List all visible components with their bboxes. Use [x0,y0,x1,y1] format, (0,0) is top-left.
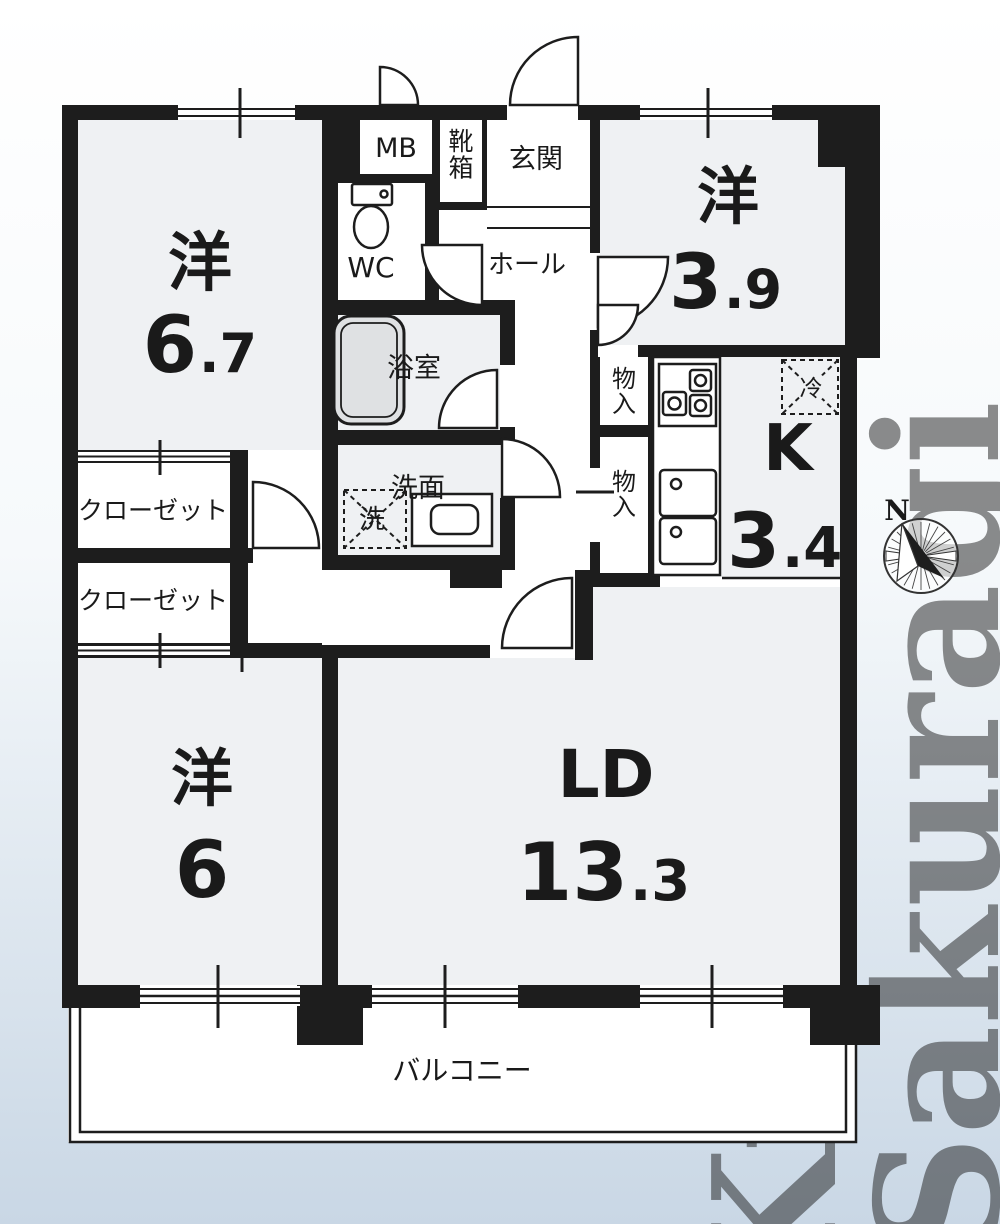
wall-pillar [810,985,880,1045]
western-6-size-main: 6 [175,826,229,916]
wall-segment [845,105,880,358]
kitchen-label: K [763,412,815,486]
western-6-kanji: 洋 [171,742,233,815]
kitchen-size-dec: .4 [782,516,842,581]
wall-segment [322,645,490,658]
wall-segment [500,498,515,570]
western-6-7-size-dec: .7 [199,322,257,385]
wall-segment [322,300,515,315]
shoe-box-label: 靴箱 [448,127,473,182]
floorplan-page: Kuro Sakuragi [0,0,1000,1224]
kitchen-counter [653,357,720,575]
wall-segment [62,985,140,1008]
washroom-label: 洗面 [391,473,445,504]
washing-machine-label: 洗 [359,505,385,535]
wall-segment [575,570,593,660]
meter-box-label: MB [375,133,417,164]
wall-segment [590,425,648,437]
wall-segment [62,548,253,563]
closet-lower-label: クローゼット [78,586,228,615]
wall-segment [638,345,880,357]
stove-icon [659,364,716,426]
wall-segment [322,430,515,445]
wc-label: WC [347,251,394,284]
kitchen-size-main: 3 [727,496,780,585]
floor-western-6 [78,658,322,985]
ld-size-dec: .3 [630,849,690,914]
sink-icon [660,470,716,564]
wall-segment [420,105,507,120]
wall-segment [500,300,515,365]
wall-segment [518,985,640,1008]
floorplan-drawing: Kuro Sakuragi [0,0,1000,1224]
floor-ld-main [338,658,840,985]
wall-segment [840,352,857,992]
hall-label: ホール [488,250,566,280]
compass-north-label: N [884,494,910,527]
floor-ld-upper [593,587,840,658]
wall-segment [578,105,640,120]
toilet-icon [352,184,392,248]
balcony-label: バルコニー [392,1054,531,1087]
wall-segment [590,105,600,253]
bath-label: 浴室 [387,353,441,384]
wall-segment [322,645,338,990]
closet-upper-label: クローゼット [78,496,228,525]
western-3-9-size-main: 3 [669,237,722,326]
entrance-label: 玄関 [509,144,563,175]
western-3-9-size-dec: .9 [724,258,782,321]
wall-segment [590,542,600,573]
ld-size-main: 13 [517,826,628,919]
wall-pillar [297,985,363,1045]
wall-segment [62,105,178,120]
wall-segment [450,570,502,588]
western-3-9-kanji: 洋 [697,160,759,233]
western-6-7-kanji: 洋 [168,227,232,301]
wall-segment [230,450,248,563]
wall-segment [590,345,598,357]
western-6-7-size-main: 6 [143,301,197,391]
refrigerator-label: 冷 [800,376,823,402]
storage-lower-label: 物入 [612,468,636,521]
ld-label: LD [558,736,655,813]
wall-segment [322,555,502,570]
wall-segment [583,573,660,587]
wall-segment [590,357,600,468]
wall-pillar [818,105,848,167]
storage-upper-label: 物入 [612,365,636,418]
